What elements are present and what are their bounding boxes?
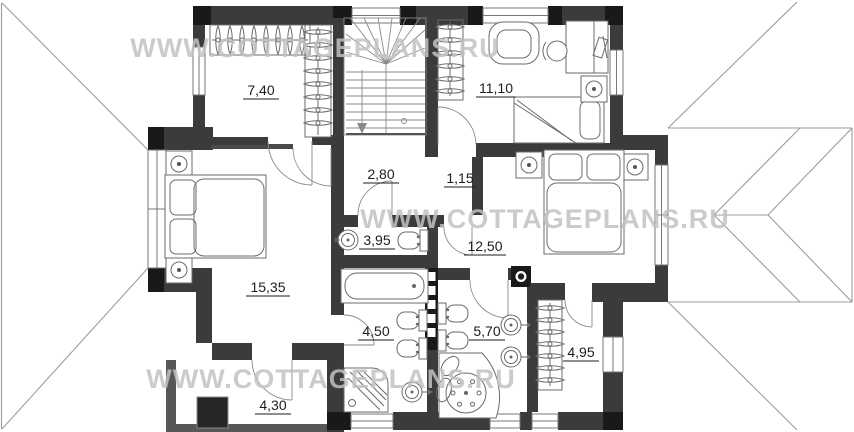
- stair-direction-arrow: [357, 123, 367, 134]
- room-area-label-dressing: 7,40: [247, 82, 274, 98]
- bidet: [438, 330, 468, 351]
- nightstand: [622, 154, 648, 180]
- watermark-text: WWW.COTTAGEPLANS.RU: [146, 364, 515, 394]
- room-area-label-balcony: 4,30: [259, 397, 286, 413]
- room-area-label-hall: 2,80: [367, 166, 394, 182]
- toilet: [397, 310, 427, 331]
- wardrobe-closet: [536, 300, 564, 390]
- washbasin: [501, 315, 521, 335]
- floor-plan-drawing: 7,40 11,10 2,80 1,15 3,95 12,50 15,35 4,…: [0, 0, 854, 432]
- bidet: [397, 338, 427, 359]
- watermark-text: WWW.COTTAGEPLANS.RU: [130, 33, 499, 63]
- room-area-label-bath-b: 5,70: [473, 323, 500, 339]
- floor-plan-page: 7,40 11,10 2,80 1,15 3,95 12,50 15,35 4,…: [0, 0, 854, 432]
- room-area-label-bedroom-top: 11,10: [479, 80, 513, 96]
- office-chair: [547, 41, 567, 61]
- washbasin: [338, 230, 358, 250]
- room-area-label-wc: 3,95: [363, 232, 390, 248]
- nightstand: [166, 257, 192, 283]
- desk-with-chair: [543, 21, 608, 73]
- nightstand: [166, 151, 192, 177]
- speaker-cabinet: [581, 76, 607, 102]
- room-area-label-bedroom-master: 15,35: [250, 279, 285, 295]
- bed-single: [514, 97, 604, 143]
- bathroom-b-fixtures: [434, 303, 531, 418]
- room-area-label-bedroom-right: 12,50: [467, 238, 502, 254]
- nightstand: [516, 152, 542, 178]
- room-area-label-bath-a: 4,50: [362, 323, 389, 339]
- watermark-text: WWW.COTTAGEPLANS.RU: [360, 204, 729, 234]
- toilet: [438, 303, 468, 324]
- bed-right: [516, 150, 648, 254]
- bed-master: [165, 151, 266, 283]
- room-area-label-lobby: 1,15: [446, 170, 473, 186]
- room-area-label-closet: 4,95: [567, 344, 594, 360]
